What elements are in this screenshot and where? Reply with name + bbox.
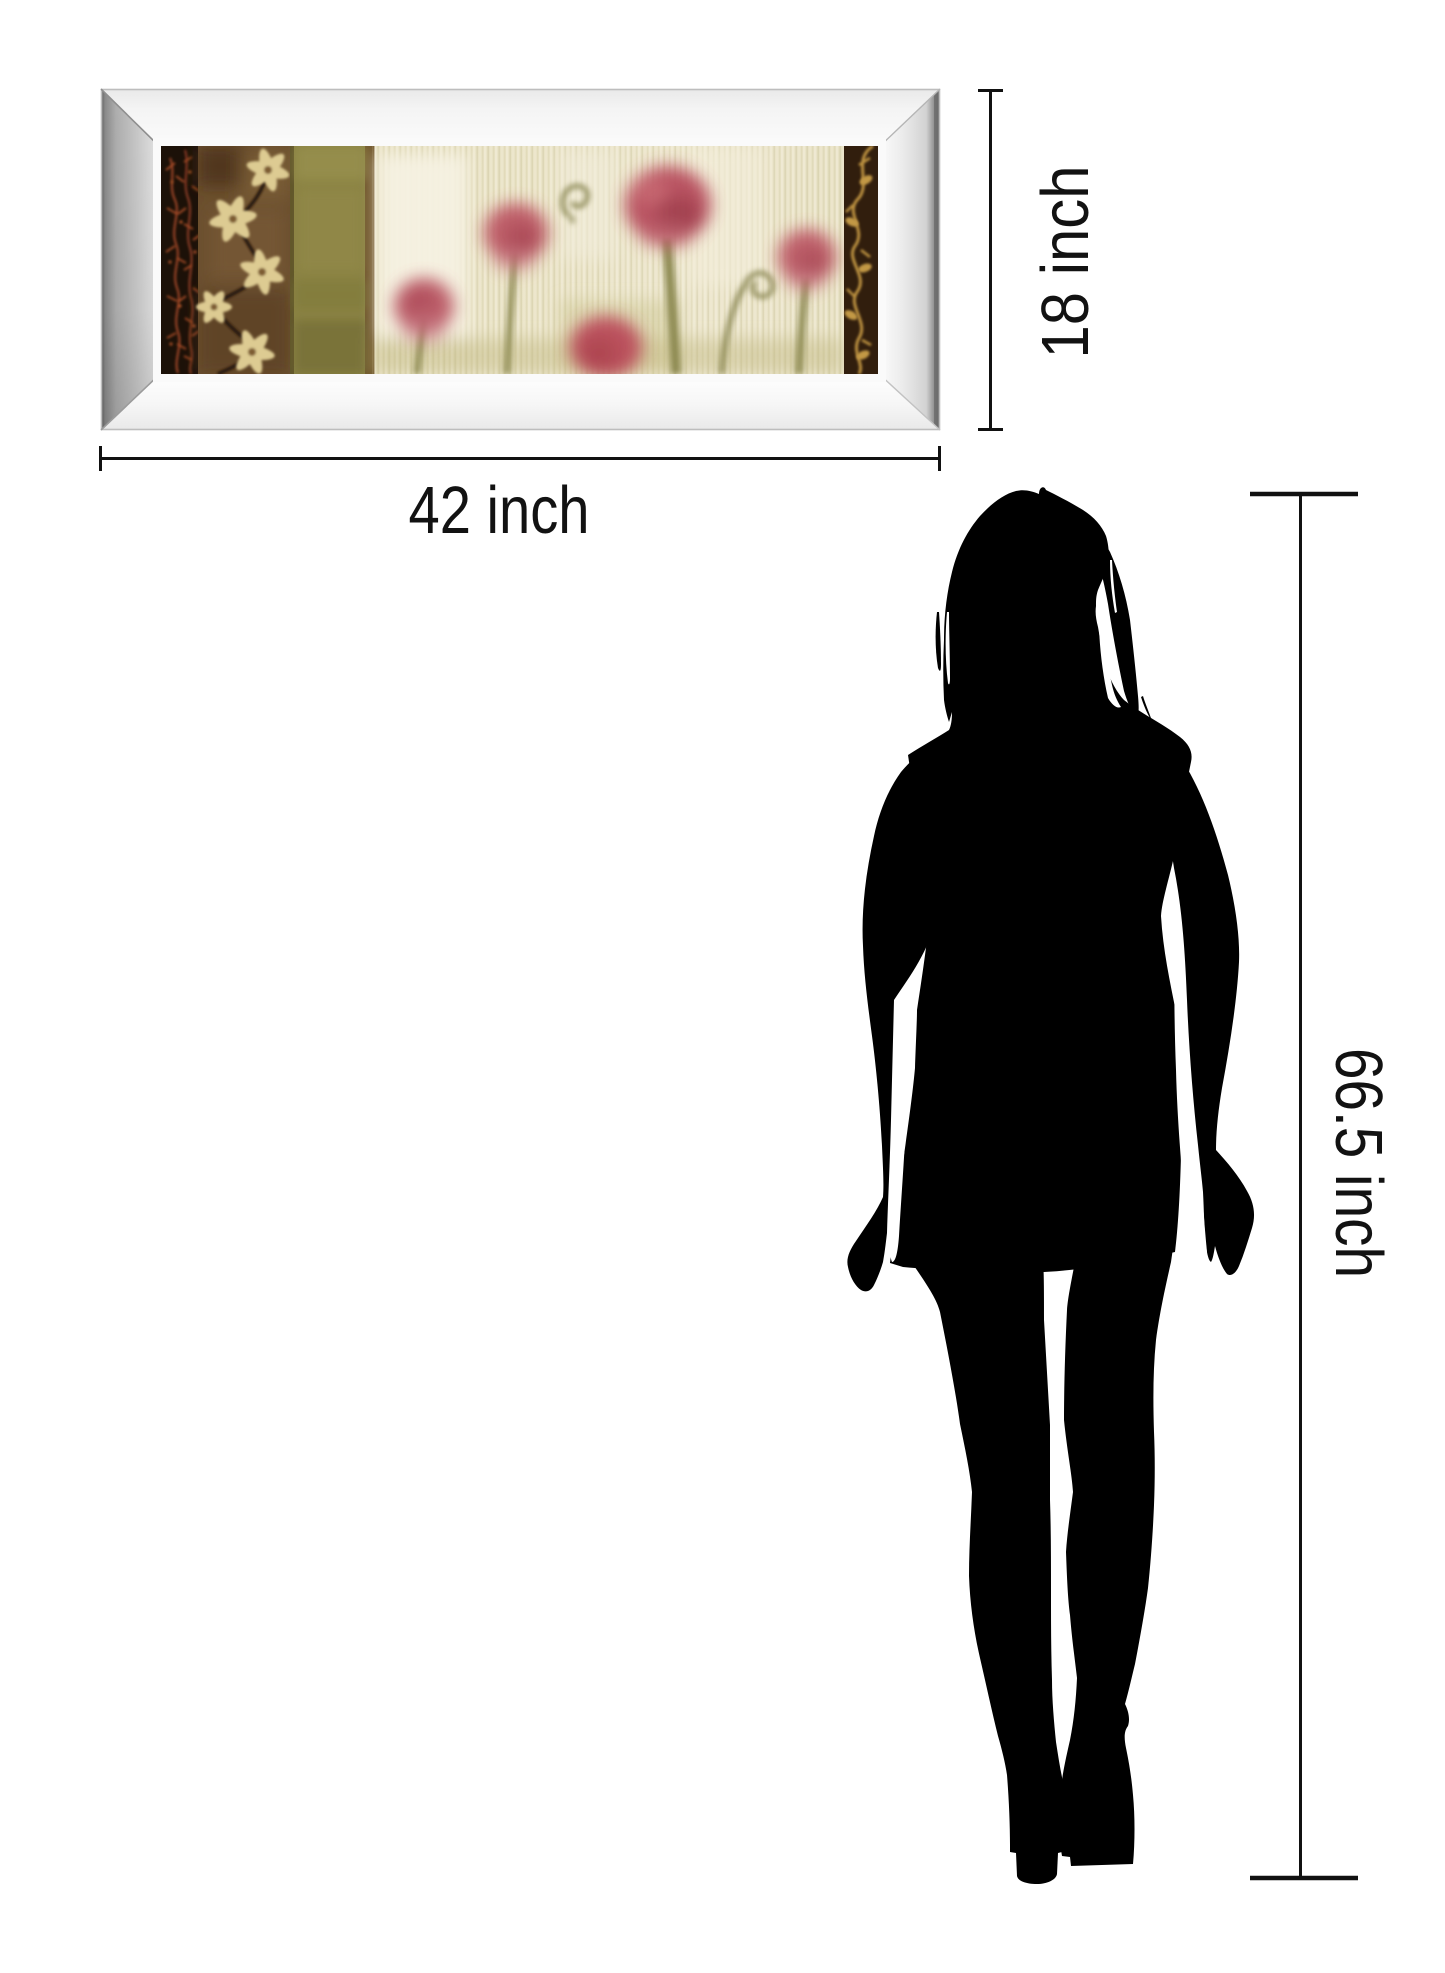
svg-text:18 inch: 18 inch — [1028, 166, 1103, 359]
svg-text:42 inch: 42 inch — [409, 473, 590, 548]
svg-text:66.5 inch: 66.5 inch — [1321, 1048, 1396, 1278]
